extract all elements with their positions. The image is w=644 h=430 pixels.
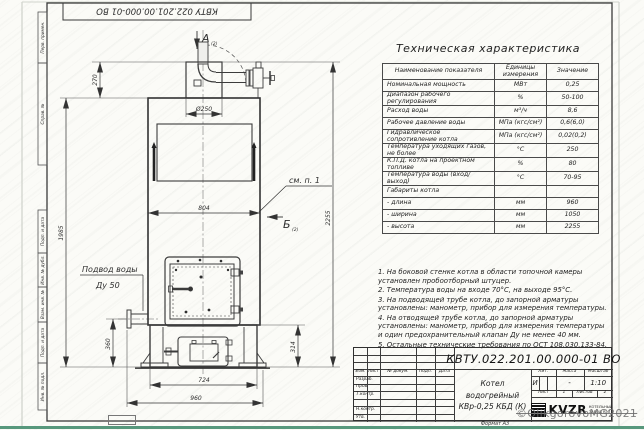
dimension-texts: 270 Ø250 804 1985 2255 360 314 724 960 [58,74,332,402]
spec-row: Температура уходящих газов, не более°С25… [383,144,599,158]
spec-row: Температура воды (вход/выход)°С70-95 [383,172,599,186]
ash-door-hinge-top [226,340,232,345]
tb-col-izm: Изм. [354,369,367,376]
spec-table: Наименование показателя Единицы измерени… [382,63,599,234]
tb-scale-value: 1:10 [584,376,614,390]
fuel-door-hinge-top [231,269,239,276]
heat-exchanger-window [157,124,252,181]
notes-list: 1. На боковой стенке котла в области топ… [378,268,608,350]
tb-col-list: Лист [367,369,380,376]
boiler-drawing: А (2) [58,30,340,407]
water-supply-dn: Ду 50 [95,281,120,290]
watermark-text: ©OlikgorovoMG2021 [516,407,637,420]
annotations: см. п. 1 Б (2) Подвод воды Ду 50 [80,176,332,311]
product-name-line1: Котел водогрейный [454,378,531,401]
dim-270: 270 [92,74,99,86]
dim-724: 724 [198,377,210,384]
spec-row: К.П.Д. котла на проектном топливе%80 [383,158,599,172]
dim-360: 360 [105,338,112,350]
spec-row: Расход водым³/ч8,6 [383,106,599,118]
spec-table-body: Номинальная мощностьМВт0,25Диапазон рабо… [383,80,599,234]
tb-lit-label: Лит. [531,369,556,376]
spec-row: - высотамм2255 [383,222,599,234]
spec-header-units: Единицы измерения [495,64,547,80]
note-item: 2. Температура воды на входе 70°С, на вы… [378,286,608,295]
tb-mass-label: Масса [556,369,584,376]
margin-label: Инв. № подл. [40,372,46,402]
ash-door-hinge-bottom [226,356,232,361]
margin-label: Инв. № дубл. [40,255,46,284]
doc-number: КВТУ.022.201.00.000-01 ВО [454,348,613,369]
tb-row-tkontr: Т.контр. [354,391,382,399]
spec-row: - длинамм960 [383,198,599,210]
dim-250: Ø250 [195,106,212,113]
margin-label: Подп. и дата [40,217,46,247]
tb-sheet-label: Лист [531,390,556,397]
spec-row: Гидравлическое сопротивление котлаМПа (к… [383,130,599,144]
fuel-door-hinge-bottom [231,306,239,313]
fuel-door [165,257,243,326]
tb-lit-value: И [531,376,539,390]
margin-label: Подп. и дата [40,328,46,358]
blueprint-photo: Перв. примен. Справ. № Подп. и дата Инв.… [0,0,644,430]
tb-sheet-value: 1 [556,390,572,397]
tb-col-doc: № докум. [380,369,416,376]
note-item: 3. На подводящей трубе котла, до запорно… [378,296,608,313]
note-item: 1. На боковой стенке котла в области топ… [378,268,608,285]
swing-arc [206,45,246,85]
margin-label: Взам. инв. № [40,289,46,319]
photo-bottom-edge [0,426,644,429]
tb-mass-value: - [556,376,584,390]
clamp-bars [152,142,257,181]
margin-label: Справ. № [40,103,46,124]
spec-header-value: Значение [547,64,599,80]
margin-stamp-box [108,415,136,425]
ash-door [164,337,232,366]
margin-label: Перв. примен. [40,21,46,53]
tb-col-data: Дата [435,369,454,376]
view-b-ref: (2) [292,227,299,233]
top-stamp-number: КВТУ 022.201.00.000-01 ВО [96,6,218,16]
spec-row: Габариты котла [383,186,599,198]
tb-col-podp: Подп. [416,369,435,376]
dim-804: 804 [198,205,210,212]
dim-1985: 1985 [58,225,65,240]
water-supply-label: Подвод воды [82,265,138,274]
spec-table-title: Техническая характеристика [370,42,606,55]
dim-2255: 2255 [325,210,332,225]
spec-row: - ширинамм1050 [383,210,599,222]
tb-row-utv: Утв. [354,414,382,422]
tb-row-nkontr: Н.контр. [354,406,382,414]
note-item: 4. На отводящей трубе котла, до запорной… [378,314,608,340]
chimney-elbow-assembly [186,62,275,98]
tb-scale-label: Масштаб [584,369,614,376]
spec-row: Номинальная мощностьМВт0,25 [383,80,599,92]
frame-margin-labels: Перв. примен. Справ. № Подп. и дата Инв.… [40,21,46,401]
spec-header-row: Наименование показателя Единицы измерени… [383,64,599,80]
dim-960: 960 [190,395,202,402]
tb-row-prov: Пров. [354,384,382,391]
tb-sheets-label: Листов [572,390,597,397]
see-note-label: см. п. 1 [289,176,320,185]
spec-row: Рабочее давление водыМПа (кгс/см²)0,6(6,… [383,118,599,130]
spec-header-name: Наименование показателя [383,64,495,80]
dim-314: 314 [290,341,297,353]
tb-row-razrab: Разраб. [354,376,382,384]
spec-row: Диапазон рабочего регулирования%50-100 [383,92,599,106]
chimney-pipe [198,42,208,64]
view-b-label: Б [283,218,291,231]
tb-sheets-value: 2 [597,390,613,397]
